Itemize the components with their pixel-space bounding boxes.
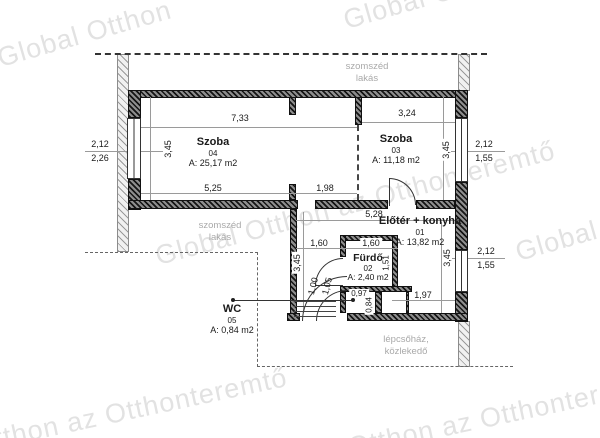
partition-light: [357, 125, 359, 200]
room-number: 03: [372, 146, 420, 155]
watermark-brand: Global: [512, 215, 600, 268]
dimension-line: [141, 193, 296, 194]
neighbor-wall-strip: [458, 321, 470, 367]
watermark-brand: Global Otthon: [0, 0, 175, 74]
room-number: 01: [379, 228, 461, 237]
wall-stub: [289, 184, 296, 200]
dimension-line: [343, 248, 398, 249]
dimension-label: 5,25: [202, 183, 224, 193]
watermark-brand: Global Otthon az Otthonteremtő: [0, 362, 290, 438]
wall-left: [128, 90, 141, 118]
room-label-szoba-04: Szoba 04 A: 25,17 m2: [189, 136, 238, 168]
window-right-top: [455, 118, 468, 182]
wall-stub: [289, 97, 296, 115]
dimension-label: 3,24: [396, 108, 418, 118]
room-area: A: 25,17 m2: [189, 158, 238, 168]
room-area: A: 11,18 m2: [372, 155, 420, 165]
watermark-brand: Global Otthon az Otthonteremtő: [255, 366, 600, 438]
dimension-label: 1,97: [412, 290, 434, 300]
neighbor-wall-strip: [458, 54, 470, 91]
zone-line: lépcsőház,: [383, 334, 428, 346]
dimension-line: [392, 300, 455, 301]
wall-middle: [416, 200, 455, 209]
dimension-line: [362, 122, 455, 123]
room-name: Fürdő: [347, 252, 388, 264]
entry-steps: [294, 301, 336, 321]
wc-leader-dot: [231, 298, 235, 302]
zone-line: közlekedő: [383, 346, 428, 358]
zone-line: szomszéd: [346, 61, 389, 73]
wall-top: [128, 90, 468, 98]
room-label-szoba-03: Szoba 03 A: 11,18 m2: [372, 133, 420, 165]
room-area: A: 13,82 m2: [379, 237, 461, 247]
room-label-eloter-konyha: Előtér + konyha 01 A: 13,82 m2: [379, 215, 461, 247]
dimension-label: 1,55: [475, 260, 497, 270]
neighbor-label-left: szomszéd lakás: [199, 220, 242, 244]
dimension-line: [296, 193, 357, 194]
room-label-wc: WC 05 A: 0,84 m2: [210, 303, 254, 335]
site-boundary-bottom: [257, 366, 513, 367]
dimension-label: 7,33: [229, 113, 251, 123]
wall-divider: [355, 97, 362, 125]
zone-line: szomszéd: [199, 220, 242, 232]
room-name: Előtér + konyha: [379, 215, 461, 228]
neighbor-label-top: szomszéd lakás: [346, 61, 389, 85]
wall-bath-left: [340, 235, 346, 257]
room-number: 04: [189, 149, 238, 158]
dimension-label: 3,45: [442, 247, 452, 269]
dimension-label: 2,26: [89, 153, 111, 163]
dimension-label: 1,98: [314, 183, 336, 193]
stairwell-label: lépcsőház, közlekedő: [383, 334, 428, 358]
dimension-label: 3,45: [292, 252, 302, 274]
zone-line: lakás: [346, 73, 389, 85]
door-arc-room03: [389, 178, 416, 205]
dimension-line: [150, 97, 151, 200]
dimension-label: 2,12: [473, 139, 495, 149]
dimension-label: 2,12: [475, 246, 497, 256]
dimension-line: [141, 127, 357, 128]
wall-middle: [128, 200, 298, 209]
wc-leader-line: [233, 300, 353, 301]
room-name: Szoba: [372, 133, 420, 146]
window-left: [127, 118, 141, 179]
room-label-furdo: Fürdő 02 A: 2,40 m2: [347, 252, 388, 283]
site-boundary-top: [95, 53, 487, 55]
dimension-label: 0,84: [365, 295, 374, 315]
wc-leader-dot: [351, 298, 355, 302]
room-area: A: 2,40 m2: [347, 273, 388, 283]
floor-plan: Global Otthon Global Otthon Global Ottho…: [0, 0, 600, 438]
site-boundary-vertical: [257, 252, 258, 367]
dimension-line: [443, 151, 505, 152]
wall-right: [455, 90, 468, 118]
dimension-label: 2,12: [89, 139, 111, 149]
wall-wc: [375, 292, 382, 313]
door-leaf-room03: [389, 178, 390, 206]
room-name: Szoba: [189, 136, 238, 149]
room-name: WC: [210, 303, 254, 316]
wall-middle: [315, 200, 388, 209]
zone-line: lakás: [199, 232, 242, 244]
dimension-label: 1,55: [473, 153, 495, 163]
wall-nook: [406, 292, 409, 313]
room-area: A: 0,84 m2: [210, 325, 254, 335]
window-right-low: [455, 250, 468, 292]
dimension-label: 1,60: [308, 238, 330, 248]
site-boundary-left: [85, 252, 258, 253]
room-number: 05: [210, 316, 254, 325]
dimension-label: 3,45: [441, 139, 451, 161]
dimension-line: [303, 212, 304, 313]
watermark-brand: Global Otthon: [340, 0, 521, 36]
dimension-label: 3,45: [163, 138, 173, 160]
